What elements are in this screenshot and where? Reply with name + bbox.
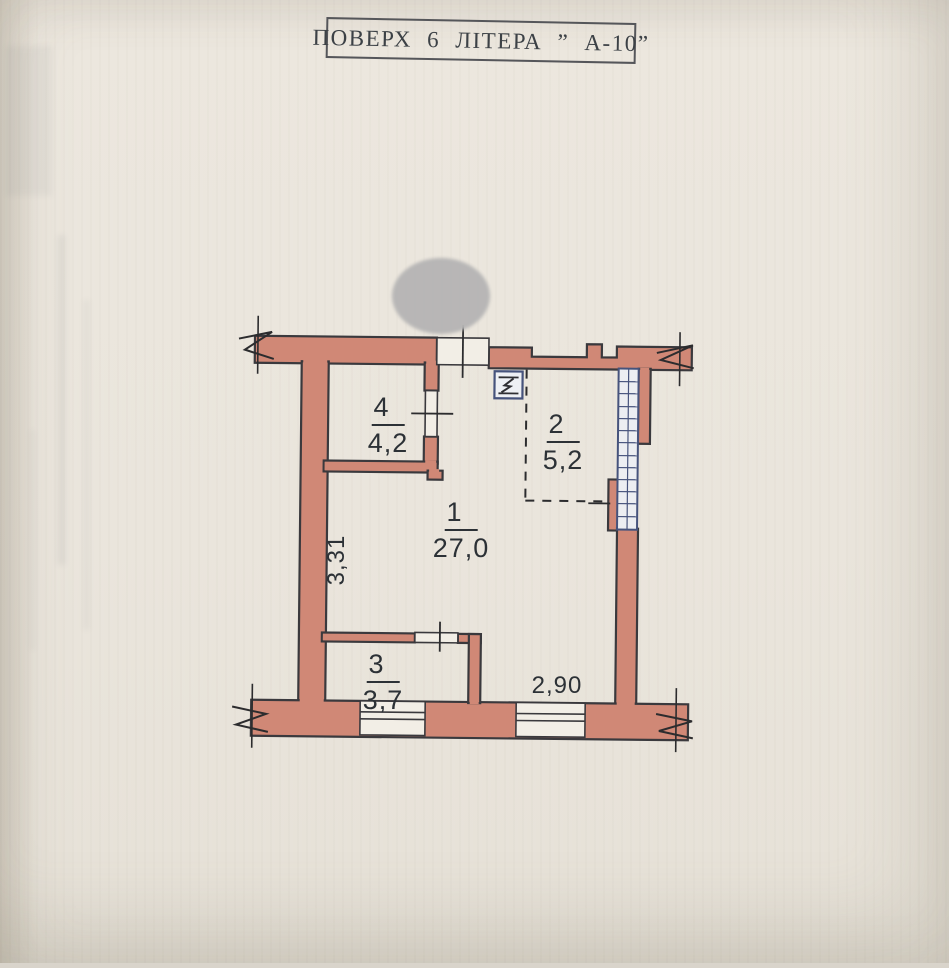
room3-label: 3 3,7 [363, 651, 404, 714]
electric-panel-icon [494, 371, 522, 398]
room2-number: 2 [546, 411, 579, 443]
dimension-left-wall: 3,31 [323, 535, 351, 586]
left-wall [298, 361, 329, 700]
room3-number: 3 [366, 651, 399, 683]
room1-label: 1 27,0 [433, 499, 490, 562]
room2-area: 5,2 [543, 447, 584, 474]
room4-label: 4 4,2 [368, 394, 409, 457]
dimension-bottom-wall: 2,90 [532, 672, 583, 700]
bottom-wall [251, 700, 688, 741]
room1-number: 1 [444, 499, 477, 531]
floor-plan-drawing [0, 0, 949, 968]
room3-area: 3,7 [363, 687, 404, 714]
room4-right-wall-lower [424, 437, 438, 464]
room3-door-opening [415, 632, 458, 642]
redaction-ellipse [392, 258, 490, 334]
balcony-glazing-window [617, 369, 639, 530]
room1-area: 27,0 [433, 535, 490, 562]
room3-top-wall [322, 632, 415, 642]
right-wall [615, 529, 638, 704]
top-wall-left [255, 336, 437, 365]
scanned-floorplan-page: ПОВЕРХ 6 ЛІТЕРА ” А-10” [0, 0, 949, 963]
window-pier-right [638, 369, 651, 444]
room4-bottom-wall [324, 460, 438, 472]
room2-label: 2 5,2 [543, 411, 584, 474]
room4-number: 4 [371, 394, 404, 426]
room4-area: 4,2 [368, 430, 409, 457]
top-wall-right [489, 343, 692, 370]
room3-right-wall [468, 634, 481, 703]
room4-right-wall-upper [424, 363, 438, 391]
